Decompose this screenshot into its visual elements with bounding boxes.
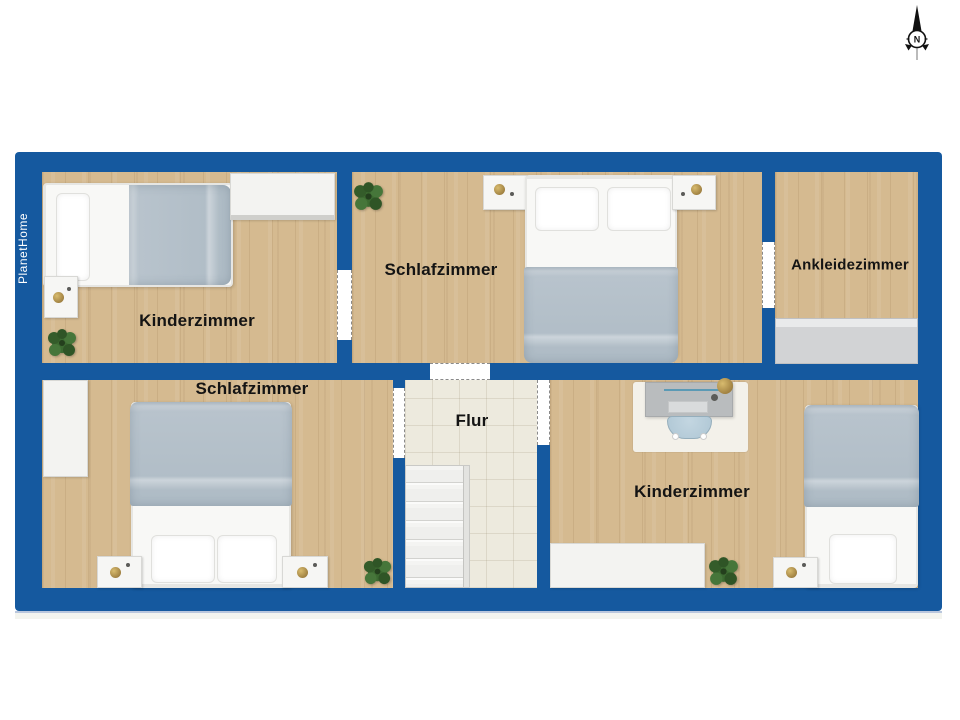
potted-plant [362,556,393,587]
room-label-schlafzimmer-top: Schlafzimmer [385,260,498,280]
room-label-ankleidezimmer: Ankleidezimmer [791,257,909,274]
wardrobe [43,380,88,477]
blanket [130,402,292,506]
pot-dot [67,287,71,291]
pot-dot [510,192,514,196]
door-schlafzimmer-flur [430,363,490,380]
pot-dot [313,563,317,567]
desk-chair [667,416,712,439]
pot-dot [681,192,685,196]
pot-deco [494,184,505,195]
frame-shadow-band [15,613,942,619]
nightstand [44,276,78,318]
blanket [129,185,231,285]
pillow [535,187,599,231]
pillow [217,535,277,583]
chair-foot [700,433,707,440]
room-label-kinderzimmer-bottom-right: Kinderzimmer [634,482,750,502]
desk-keyboard [668,401,708,413]
nightstand [97,556,142,588]
door-kinderzimmer-schlafzimmer [337,270,352,340]
double-bed [131,402,291,588]
desk-plant [717,378,733,394]
compass-north-letter: N [914,35,921,45]
pot-deco [297,567,308,578]
double-bed [525,175,677,357]
pillow [829,534,897,584]
pot-dot [126,563,130,567]
blanket [804,405,919,507]
plan-frame: PlanetHome Kinderzimmer [15,152,942,611]
staircase [405,465,470,588]
pot-deco [110,567,121,578]
single-bed [805,405,918,588]
chair-foot [672,433,679,440]
door-flur-kinderzimmer-bottom [537,380,550,445]
desk-monitor [664,389,719,391]
pot-deco [691,184,702,195]
single-bed [43,183,233,287]
pillow [56,193,90,281]
room-label-flur: Flur [456,411,489,431]
sideboard [550,543,705,588]
pot-deco [786,567,797,578]
pot-dot [711,394,718,401]
door-flur-schlafzimmer-bottom [393,388,405,458]
pot-deco [53,292,64,303]
room-label-schlafzimmer-bottom: Schlafzimmer [196,379,309,399]
door-schlafzimmer-ankleidezimmer [762,242,775,308]
wardrobe [775,318,918,364]
nightstand [773,557,818,588]
room-label-kinderzimmer-top-left: Kinderzimmer [139,311,255,331]
potted-plant [352,180,385,213]
pillow [151,535,215,583]
compass-north-icon: N [897,3,937,61]
dresser [230,173,335,220]
pot-dot [802,563,806,567]
pillow [607,187,671,231]
brand-watermark: PlanetHome [16,188,42,308]
potted-plant [707,555,740,588]
floorplan-page: N PlanetHome Kinderzimmer [0,0,960,720]
blanket [524,267,678,363]
nightstand [483,175,527,210]
nightstand [672,175,716,210]
potted-plant [46,327,78,359]
nightstand [282,556,328,588]
